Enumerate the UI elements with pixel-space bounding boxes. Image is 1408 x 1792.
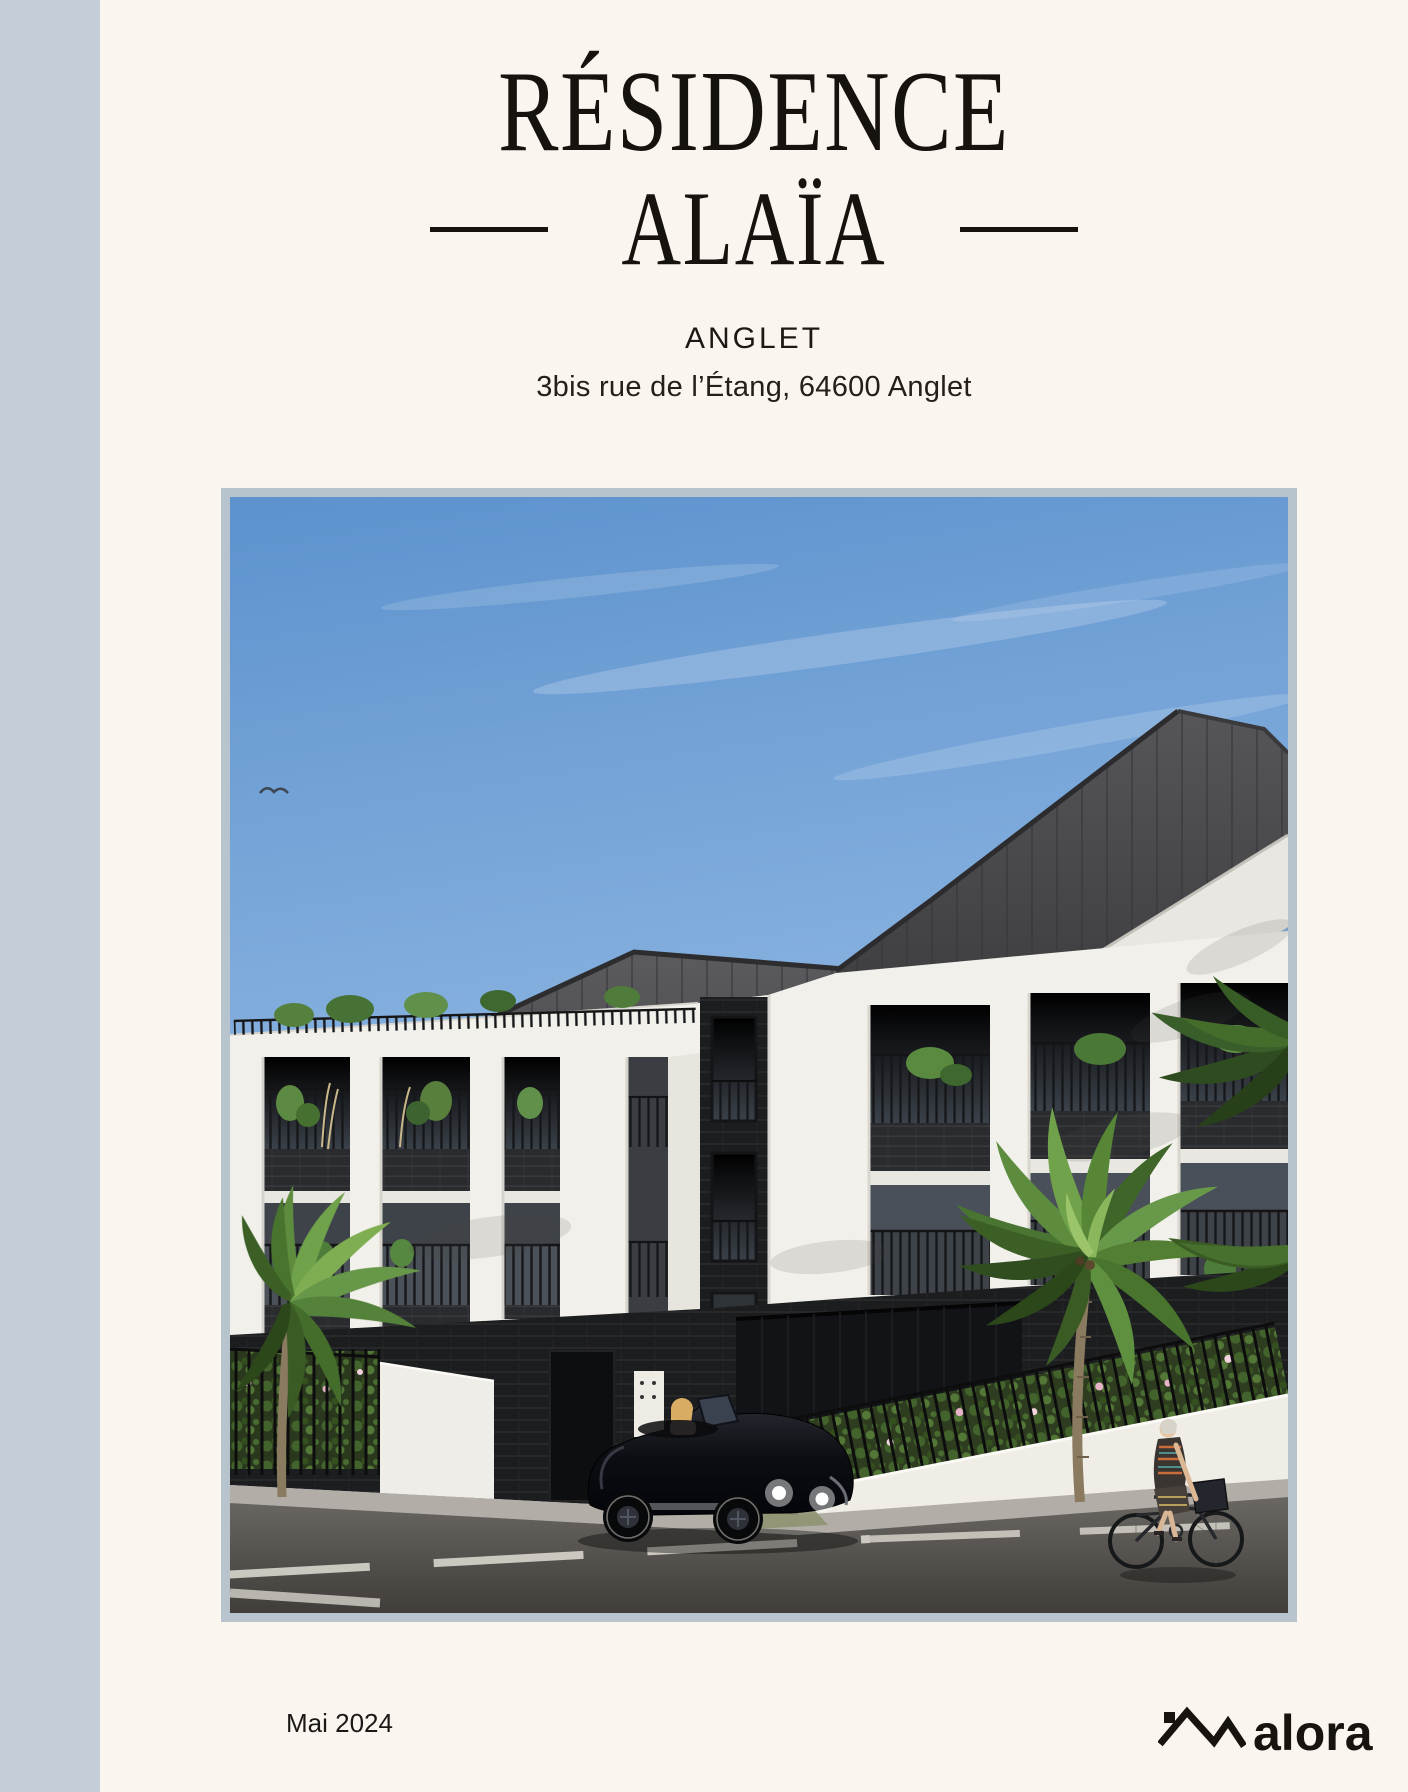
accent-stripe <box>0 0 100 1792</box>
rear-wheel <box>603 1492 653 1542</box>
title-row: ALAÏA <box>100 174 1408 284</box>
building-rendering <box>230 497 1288 1613</box>
city-label: ANGLET <box>100 322 1408 356</box>
hero-image-frame <box>221 488 1297 1622</box>
page-title-line1: RÉSIDENCE <box>244 54 1264 170</box>
roofline-icon <box>1158 1700 1246 1752</box>
edition-date: Mai 2024 <box>286 1708 393 1739</box>
brochure-cover-page: RÉSIDENCE ALAÏA ANGLET 3bis rue de l’Éta… <box>0 0 1408 1792</box>
balcony-bay <box>382 1057 470 1327</box>
balcony-bay <box>504 1057 560 1319</box>
cover-header: RÉSIDENCE ALAÏA ANGLET 3bis rue de l’Éta… <box>100 0 1408 404</box>
left-rule <box>430 227 548 232</box>
front-wheel <box>713 1494 763 1544</box>
right-rule <box>960 227 1078 232</box>
brand-logo: alora <box>1158 1700 1373 1754</box>
slit-window <box>628 1057 668 1313</box>
brand-wordmark: alora <box>1253 1713 1373 1754</box>
low-wall-left <box>380 1363 494 1499</box>
address-label: 3bis rue de l’Étang, 64600 Anglet <box>100 371 1408 404</box>
page-title-line2: ALAÏA <box>622 176 887 282</box>
